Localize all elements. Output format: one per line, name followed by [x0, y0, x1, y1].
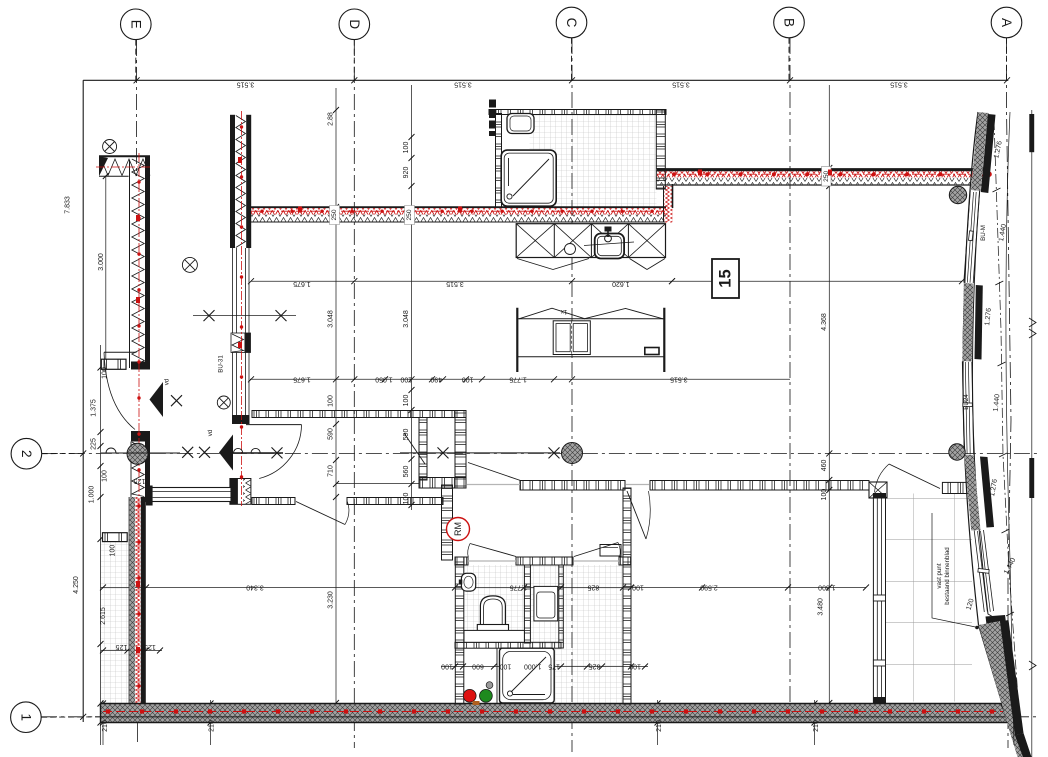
svg-text:E: E [128, 20, 143, 29]
svg-text:vd: vd [164, 378, 171, 385]
svg-text:125: 125 [116, 643, 128, 650]
svg-text:710: 710 [328, 465, 335, 477]
svg-text:590: 590 [403, 429, 410, 441]
svg-text:B: B [782, 18, 797, 27]
svg-text:100: 100 [403, 493, 410, 505]
svg-text:2.590: 2.590 [700, 584, 718, 591]
svg-text:3.515: 3.515 [890, 81, 908, 88]
svg-text:1.620: 1.620 [612, 280, 630, 287]
svg-text:590: 590 [328, 428, 335, 440]
svg-text:560: 560 [403, 466, 410, 478]
svg-text:3.340: 3.340 [246, 584, 264, 591]
svg-text:A: A [999, 18, 1014, 27]
svg-text:1.000: 1.000 [524, 663, 542, 670]
svg-text:vast punt: vast punt [936, 563, 943, 588]
svg-text:125: 125 [134, 477, 146, 484]
svg-text:1x: 1x [560, 308, 567, 315]
svg-text:bestaand binnenblad: bestaand binnenblad [944, 547, 951, 605]
svg-text:RM: RM [453, 522, 463, 536]
svg-text:825: 825 [589, 663, 601, 670]
svg-text:175: 175 [548, 663, 560, 670]
svg-text:920: 920 [403, 167, 410, 179]
svg-text:100: 100 [629, 663, 641, 670]
svg-text:1.675: 1.675 [293, 280, 311, 287]
svg-text:460: 460 [821, 459, 828, 471]
svg-text:210: 210 [813, 720, 820, 732]
svg-text:100: 100 [499, 663, 511, 670]
svg-text:100: 100 [403, 142, 410, 154]
svg-text:1.375: 1.375 [91, 399, 98, 417]
svg-text:4.250: 4.250 [73, 576, 80, 594]
svg-text:15: 15 [717, 269, 735, 287]
svg-text:250: 250 [406, 209, 413, 220]
svg-text:3.000: 3.000 [98, 253, 105, 271]
svg-text:600: 600 [472, 663, 484, 670]
svg-text:3.515: 3.515 [672, 81, 690, 88]
svg-text:100: 100 [403, 395, 410, 407]
svg-text:7.833: 7.833 [65, 196, 72, 214]
svg-text:100: 100 [102, 470, 109, 482]
svg-text:2: 2 [19, 450, 34, 458]
svg-text:1.775: 1.775 [510, 584, 528, 591]
svg-text:4.368: 4.368 [821, 313, 828, 331]
svg-text:2.88: 2.88 [328, 112, 335, 126]
svg-text:100: 100 [441, 663, 453, 670]
svg-text:1.000: 1.000 [89, 486, 96, 504]
svg-text:210: 210 [656, 720, 663, 732]
svg-text:100: 100 [102, 367, 109, 379]
svg-text:1.775: 1.775 [509, 375, 527, 382]
svg-text:250: 250 [331, 209, 338, 220]
svg-text:1.675: 1.675 [293, 375, 311, 382]
svg-text:125: 125 [144, 643, 156, 650]
svg-text:100: 100 [328, 395, 335, 407]
svg-text:100: 100 [632, 584, 644, 591]
svg-text:3.048: 3.048 [328, 310, 335, 328]
svg-text:210: 210 [209, 720, 216, 732]
svg-text:BU24: BU24 [963, 394, 970, 410]
svg-text:825: 825 [587, 584, 599, 591]
svg-text:vd: vd [207, 429, 214, 436]
svg-text:3.515: 3.515 [670, 375, 688, 382]
svg-text:1.300: 1.300 [818, 584, 836, 591]
svg-text:C: C [564, 18, 579, 28]
svg-text:BU-31: BU-31 [218, 355, 225, 373]
svg-text:100: 100 [462, 375, 474, 382]
svg-text:100: 100 [110, 545, 117, 557]
svg-text:3.515: 3.515 [454, 81, 472, 88]
svg-text:BU-M: BU-M [980, 225, 987, 241]
svg-text:3.515: 3.515 [237, 81, 255, 88]
svg-text:225: 225 [91, 438, 98, 450]
svg-text:3.048: 3.048 [403, 310, 410, 328]
svg-text:D: D [347, 19, 362, 29]
svg-text:210: 210 [102, 720, 109, 732]
svg-text:100: 100 [400, 375, 412, 382]
svg-text:3.480: 3.480 [818, 598, 825, 616]
svg-text:3.515: 3.515 [446, 280, 464, 287]
svg-text:3.230: 3.230 [328, 591, 335, 609]
svg-text:490: 490 [430, 375, 442, 382]
svg-text:100: 100 [821, 489, 828, 501]
svg-text:2.615: 2.615 [100, 607, 107, 625]
svg-text:1.050: 1.050 [375, 375, 393, 382]
svg-text:1: 1 [18, 713, 33, 721]
